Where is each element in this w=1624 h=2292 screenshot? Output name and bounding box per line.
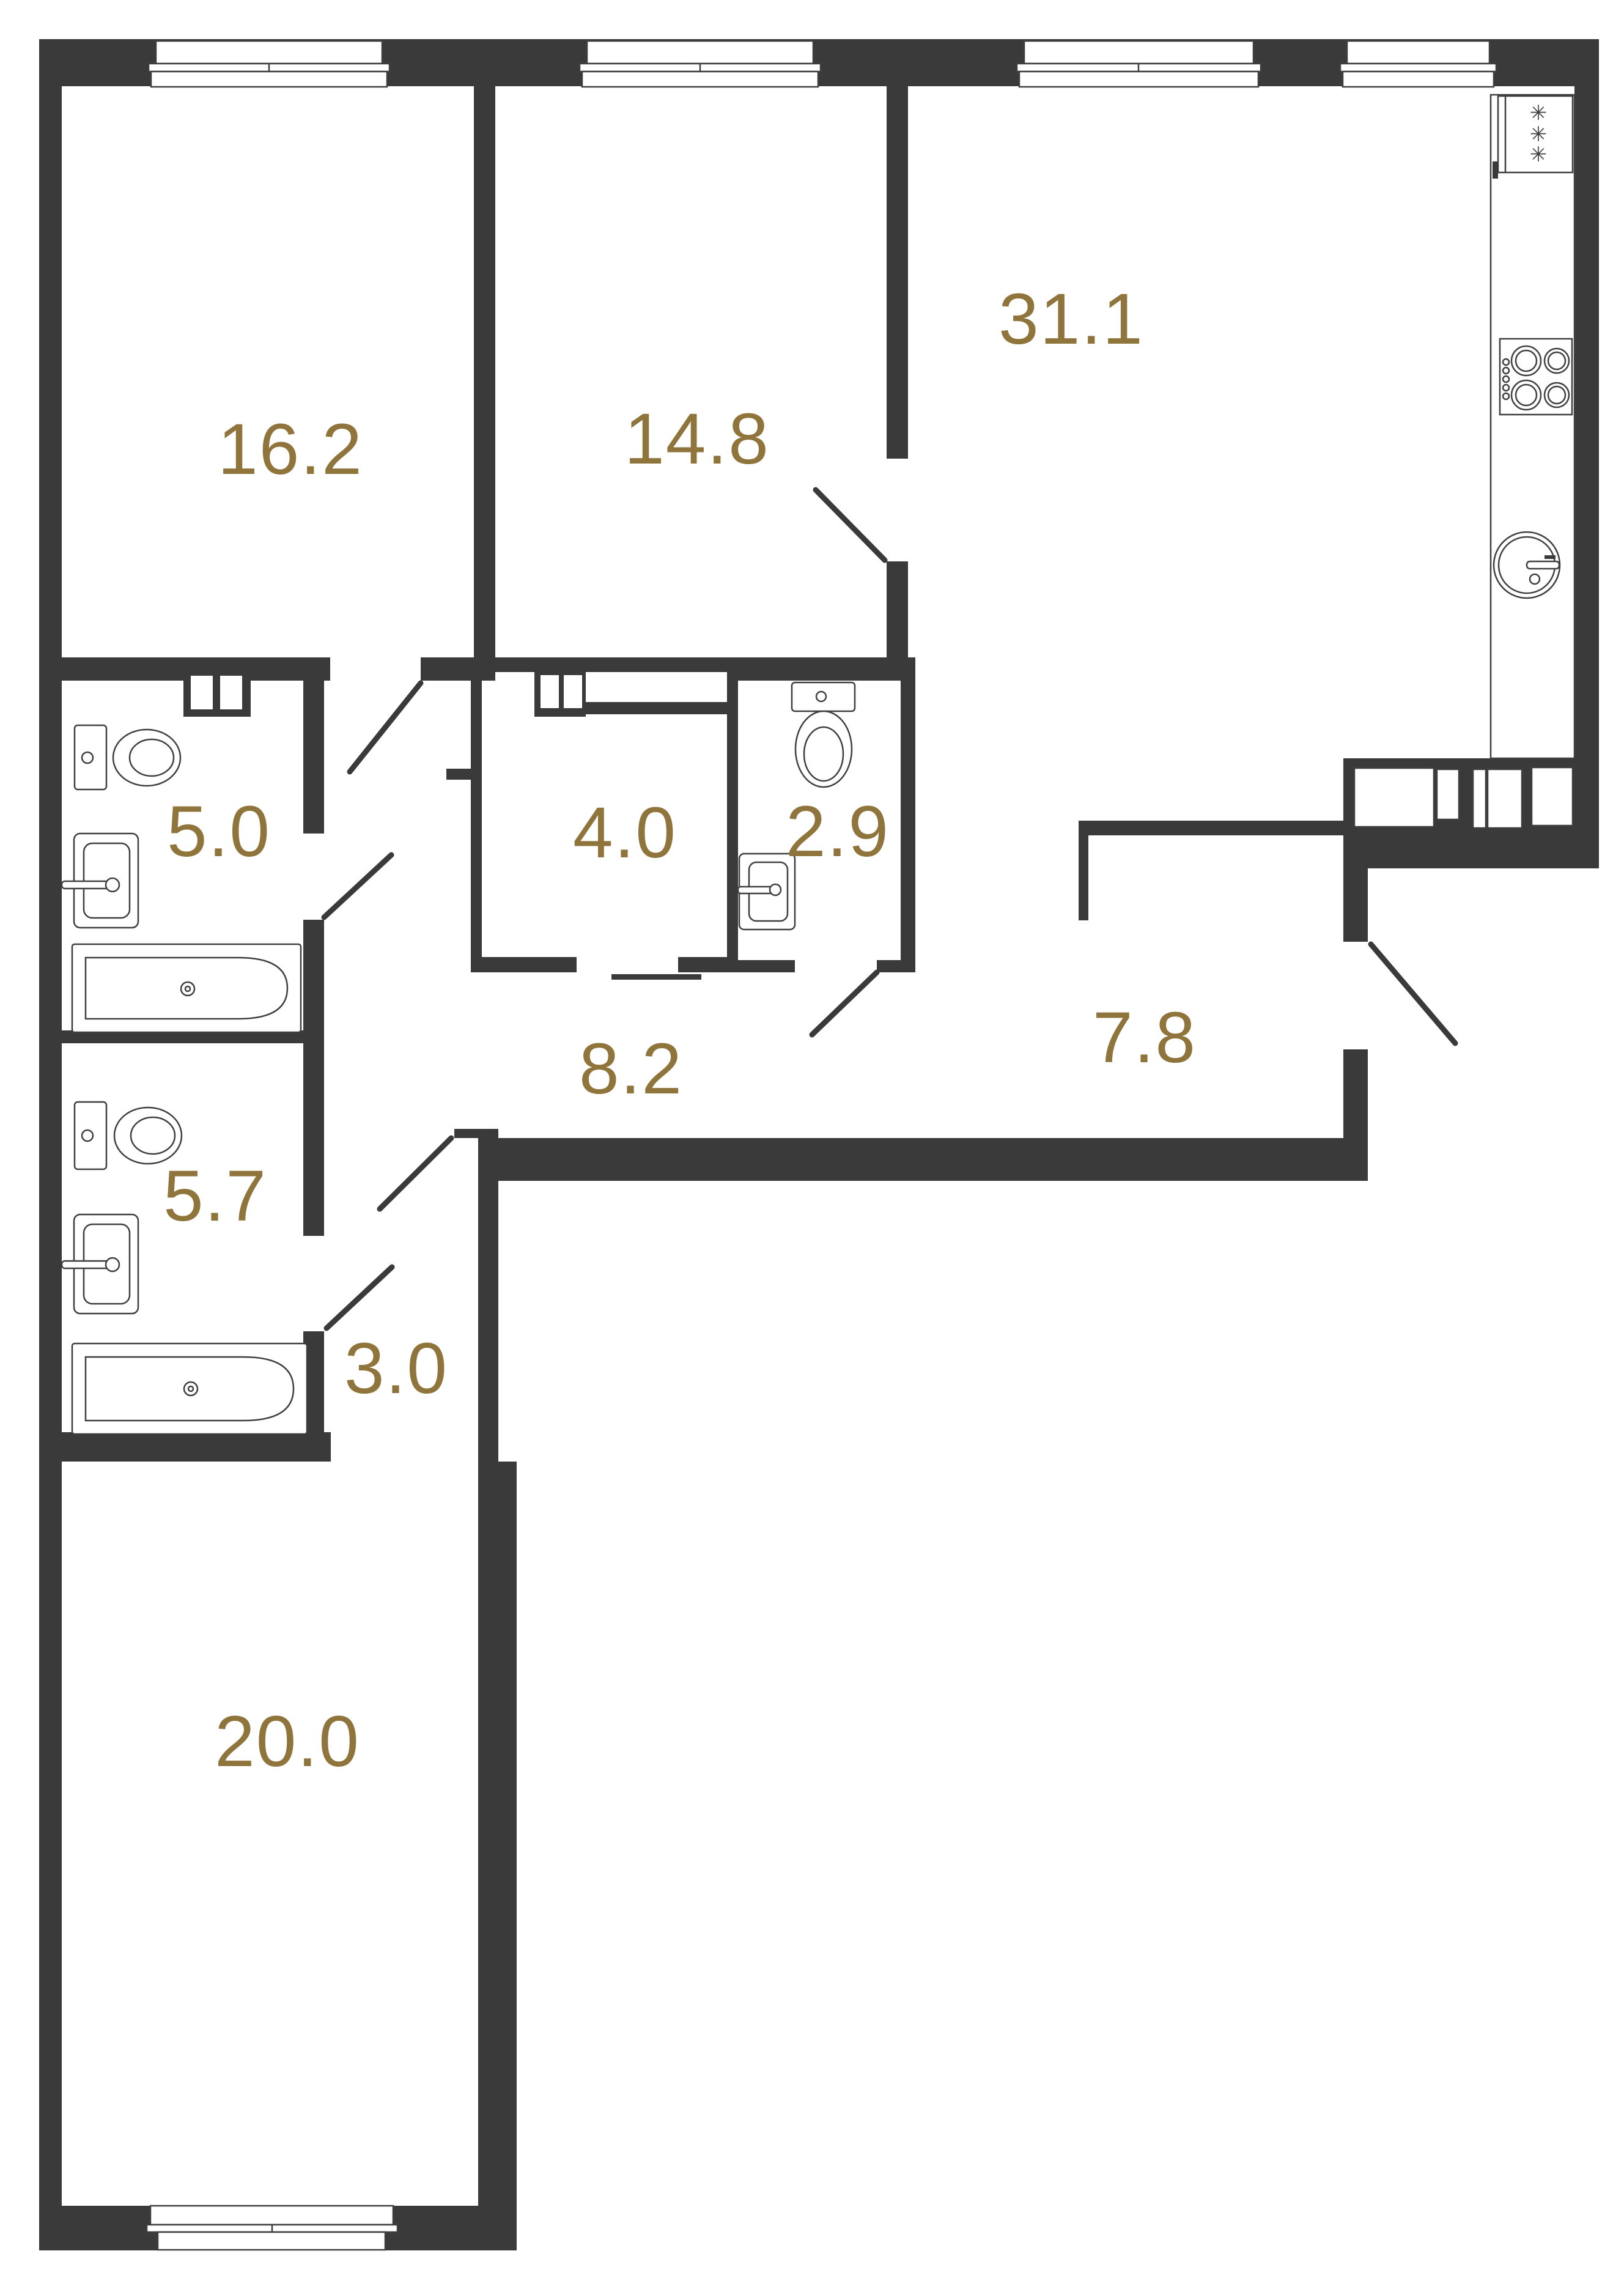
toilet-icon	[75, 725, 180, 789]
wall	[727, 681, 738, 972]
wall	[678, 957, 738, 972]
wall	[1343, 868, 1368, 942]
walls	[39, 39, 1599, 2250]
washbasin-icon	[62, 834, 138, 928]
window	[1017, 41, 1261, 87]
door-swing	[1371, 944, 1455, 1043]
svg-text:✳: ✳	[1530, 142, 1548, 167]
floor-plan-drawing: ✳ ✳ ✳	[0, 0, 1624, 2292]
vent-shaft-icon	[183, 668, 251, 717]
area-label-kitchen-living: 31.1	[998, 278, 1144, 361]
door-swing	[812, 972, 877, 1035]
vent-shaft-icon	[534, 668, 586, 717]
wall	[446, 769, 471, 780]
wall	[474, 86, 495, 657]
wall	[727, 657, 915, 681]
area-label-entry-hall: 7.8	[1093, 996, 1197, 1079]
kitchen-sink-icon	[1494, 532, 1560, 598]
wall	[877, 960, 901, 972]
wall	[478, 1138, 498, 1462]
wall	[303, 681, 324, 834]
bathtub-icon	[72, 944, 301, 1032]
fridge-icon: ✳ ✳ ✳	[1493, 96, 1573, 179]
wall	[585, 702, 727, 714]
wall	[901, 681, 915, 972]
wall	[1079, 821, 1343, 835]
door-leaf-open	[611, 974, 701, 980]
area-label-corridor: 3.0	[344, 1327, 448, 1410]
door-swing	[324, 855, 391, 917]
wall	[421, 657, 495, 681]
wall	[887, 86, 908, 459]
window	[147, 2206, 397, 2250]
kitchen-fixtures: ✳ ✳ ✳	[1354, 95, 1574, 828]
bathtub-icon	[72, 1344, 307, 1434]
vent-shafts	[183, 668, 586, 717]
stove-icon	[1500, 339, 1572, 415]
area-label-bathroom-upper: 5.0	[167, 790, 271, 873]
wall	[303, 1043, 324, 1236]
door-swing	[350, 683, 421, 772]
area-label-room-top-left: 16.2	[218, 408, 363, 491]
area-label-wc: 2.9	[786, 790, 890, 873]
wall	[471, 957, 577, 972]
toilet-icon	[792, 682, 855, 787]
area-label-bathroom-lower: 5.7	[163, 1155, 267, 1238]
wall	[478, 1462, 517, 2250]
wall	[478, 1138, 1368, 1181]
washbasin-icon	[62, 1214, 138, 1314]
wall	[1343, 1049, 1368, 1181]
wall	[1574, 39, 1599, 868]
wall	[495, 657, 738, 672]
door-swing	[327, 1267, 392, 1328]
window	[149, 41, 389, 87]
floor-plan: ✳ ✳ ✳	[0, 0, 1624, 2292]
window	[580, 41, 821, 87]
area-label-hallway: 8.2	[579, 1027, 683, 1111]
wall	[738, 960, 795, 972]
kitchen-counter	[1491, 95, 1574, 758]
wall	[39, 39, 62, 2250]
bathroom-upper-fixtures	[62, 725, 301, 1032]
area-label-room-bottom: 20.0	[215, 1700, 360, 1783]
wall	[303, 920, 324, 1032]
wall	[454, 1129, 498, 1138]
area-label-storage-room: 4.0	[573, 791, 677, 874]
wall	[39, 1432, 331, 1462]
door-swing	[816, 490, 885, 560]
door-swing	[380, 1138, 451, 1209]
area-label-room-top-middle: 14.8	[624, 397, 770, 481]
wall	[1079, 835, 1088, 920]
wall	[471, 681, 482, 957]
window	[1340, 41, 1496, 87]
bathroom-lower-fixtures	[62, 1102, 307, 1434]
svg-text:✳: ✳	[1530, 101, 1548, 125]
